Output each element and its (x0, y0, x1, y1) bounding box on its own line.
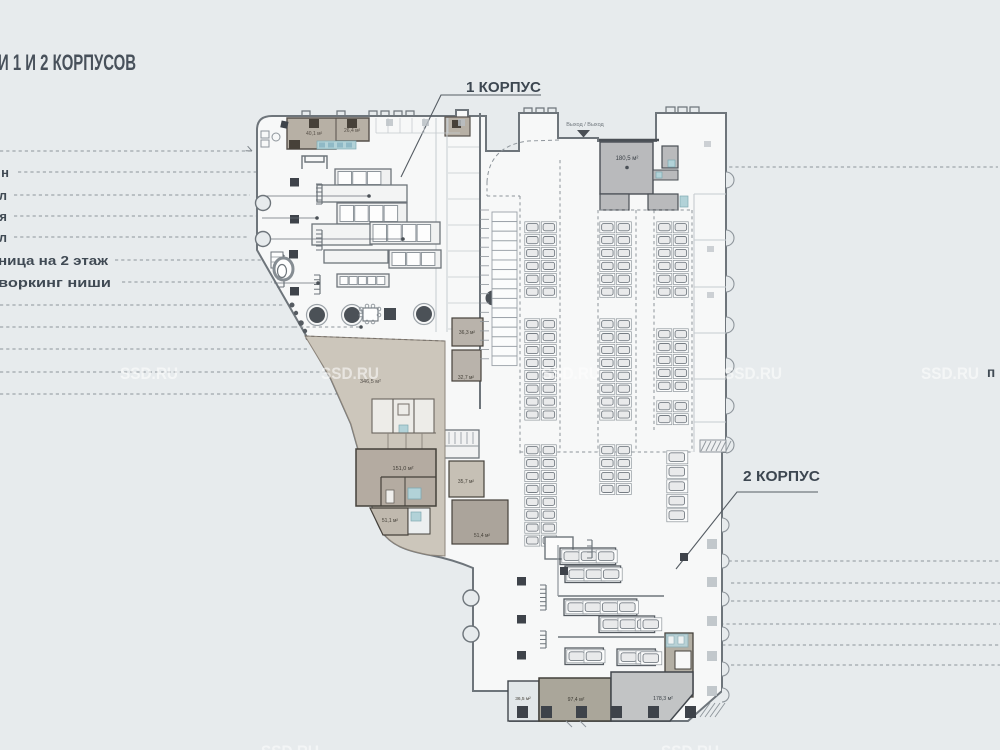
svg-text:SSD.RU: SSD.RU (261, 742, 319, 750)
svg-text:40,1 м²: 40,1 м² (306, 131, 323, 137)
svg-text:32,7 м²: 32,7 м² (458, 375, 475, 381)
svg-text:36,3 м²: 36,3 м² (459, 330, 476, 336)
svg-text:51,1 м²: 51,1 м² (382, 518, 399, 524)
svg-text:л: л (0, 230, 7, 245)
svg-text:п: п (987, 365, 995, 380)
svg-text:я: я (0, 209, 7, 224)
svg-text:35,7 м²: 35,7 м² (458, 479, 475, 485)
svg-text:97,4 м²: 97,4 м² (568, 697, 585, 703)
svg-text:SSD.RU: SSD.RU (724, 364, 782, 383)
svg-text:51,4 м²: 51,4 м² (474, 533, 491, 539)
svg-text:26,4 м²: 26,4 м² (344, 128, 361, 134)
svg-text:н: н (1, 165, 9, 180)
svg-text:36,5 м²: 36,5 м² (515, 696, 531, 702)
svg-text:л: л (0, 188, 7, 203)
svg-text:SSD.RU: SSD.RU (120, 364, 178, 383)
svg-text:Выход / Выход: Выход / Выход (566, 122, 604, 128)
svg-text:1 КОРПУС: 1 КОРПУС (466, 79, 541, 96)
svg-text:воркинг ниши: воркинг ниши (0, 275, 111, 290)
svg-text:178,3 м²: 178,3 м² (653, 696, 673, 702)
svg-text:SSD.RU: SSD.RU (542, 364, 600, 383)
svg-text:И 1 И 2 КОРПУСОВ: И 1 И 2 КОРПУСОВ (0, 50, 136, 75)
svg-text:SSD.RU: SSD.RU (921, 364, 979, 383)
svg-text:2 КОРПУС: 2 КОРПУС (743, 468, 820, 485)
svg-text:SSD.RU: SSD.RU (661, 742, 719, 750)
svg-text:ница на 2 этаж: ница на 2 этаж (0, 253, 109, 268)
svg-text:151,0 м²: 151,0 м² (393, 466, 414, 472)
svg-text:180,5 м²: 180,5 м² (616, 156, 639, 162)
svg-text:SSD.RU: SSD.RU (321, 364, 379, 383)
